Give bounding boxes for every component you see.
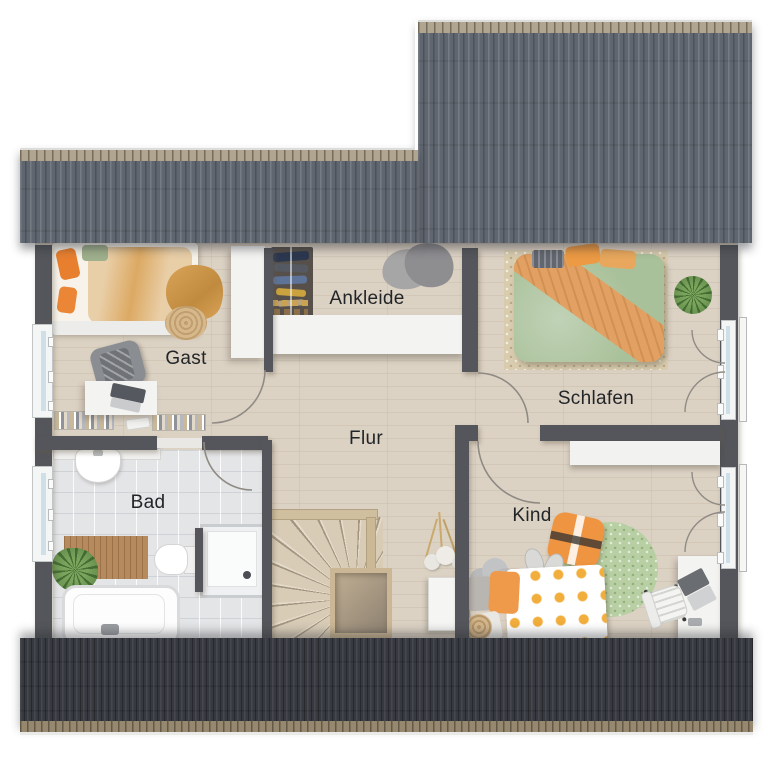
stairwell-void	[330, 568, 392, 638]
stair-stringer	[366, 517, 376, 575]
schlafen-window-handle-3	[717, 403, 724, 415]
gast-armchair-cushion	[98, 347, 135, 386]
gast-pillow-orange-1	[55, 247, 81, 281]
kind-window	[721, 467, 736, 569]
gast-window-glass	[41, 331, 46, 411]
schlafen-pillow-2	[599, 248, 636, 269]
schlafen-bed-orange-throw	[514, 254, 664, 362]
kind-bed-pillow-orange	[488, 571, 520, 615]
kind-window-handle-2	[717, 513, 724, 527]
gast-window-handle-2	[48, 371, 54, 383]
wall-schlafen-kind	[540, 425, 720, 441]
gast-window-handle-3	[48, 401, 54, 411]
roof-top-right-left-edge	[415, 20, 418, 150]
bathtub	[62, 585, 180, 646]
schlafen-juliet-railing	[739, 317, 747, 422]
roof-bottom-section	[20, 638, 753, 735]
gast-window	[32, 324, 53, 418]
wall-corner-post-flur	[455, 425, 478, 441]
room-label-gast: Gast	[165, 348, 206, 370]
kind-window-glass	[726, 473, 730, 563]
gast-bookshelf-right	[152, 414, 206, 431]
closet-rail-bar	[290, 247, 292, 317]
ankleide-shoes-row-1	[272, 300, 308, 306]
toilet-bowl	[154, 544, 188, 575]
schlafen-bed	[514, 254, 664, 362]
shower-drain	[243, 571, 251, 579]
room-label-ankleide: Ankleide	[329, 288, 404, 310]
bad-window-handle-3	[48, 541, 54, 551]
ankleide-closet-rail	[271, 247, 313, 317]
bad-window-glass	[41, 473, 46, 555]
floorplan-canvas: Gast Ankleide Schlafen Flur Bad Kind	[0, 0, 775, 763]
gast-window-handle-1	[48, 337, 54, 347]
bad-window-handle-1	[48, 479, 54, 489]
gast-pillow-green	[82, 245, 108, 261]
room-label-schlafen: Schlafen	[558, 388, 634, 410]
schlafen-window-handle-1	[717, 329, 724, 341]
wall-kind-west	[455, 441, 469, 640]
kind-desk-item	[688, 618, 702, 626]
bad-sink-faucet	[93, 450, 103, 456]
roof-top-right-ridge-cap	[418, 20, 752, 33]
room-label-kind: Kind	[512, 505, 551, 527]
wall-bad-north-right	[202, 436, 268, 450]
wall-gast-wardrobe-post	[264, 248, 273, 372]
stair-handrail	[264, 509, 378, 520]
room-label-flur: Flur	[349, 428, 383, 450]
toilet	[154, 544, 196, 574]
gast-pillow-orange-2	[56, 286, 77, 314]
gast-wardrobe	[231, 246, 265, 358]
kind-window-handle-3	[717, 552, 724, 564]
shower	[200, 524, 268, 598]
kind-window-handle-1	[717, 476, 724, 488]
shower-tray	[207, 531, 257, 587]
wall-bad-east	[262, 440, 272, 640]
bathtub-basin	[73, 594, 165, 634]
schlafen-window-handle-2	[717, 365, 724, 379]
ankleide-sideboard	[271, 315, 463, 354]
schlafen-window-glass	[726, 326, 730, 414]
bad-window-handle-2	[48, 509, 54, 521]
roof-bottom-eave-cap	[20, 721, 753, 735]
roof-top-left-section	[20, 148, 418, 243]
bad-door-threshold	[157, 438, 202, 448]
roof-top-right-section	[418, 20, 752, 243]
room-label-bad: Bad	[131, 492, 166, 514]
kind-pouf	[466, 614, 492, 640]
schlafen-plant	[674, 276, 712, 314]
schlafen-bench	[532, 250, 564, 268]
wall-shower-stub	[195, 528, 203, 592]
gast-round-rug	[165, 306, 207, 340]
wall-bad-north-left	[35, 436, 157, 450]
kind-shelf	[570, 441, 720, 465]
bad-window	[32, 466, 53, 562]
roof-top-left-ridge-cap	[20, 148, 418, 161]
wall-exterior-right	[720, 245, 738, 640]
wall-ankleide-schlafen	[462, 248, 478, 372]
schlafen-window	[721, 320, 736, 420]
clothes-pile	[382, 243, 454, 293]
bathtub-faucet	[101, 624, 119, 635]
kind-juliet-railing	[739, 464, 747, 572]
